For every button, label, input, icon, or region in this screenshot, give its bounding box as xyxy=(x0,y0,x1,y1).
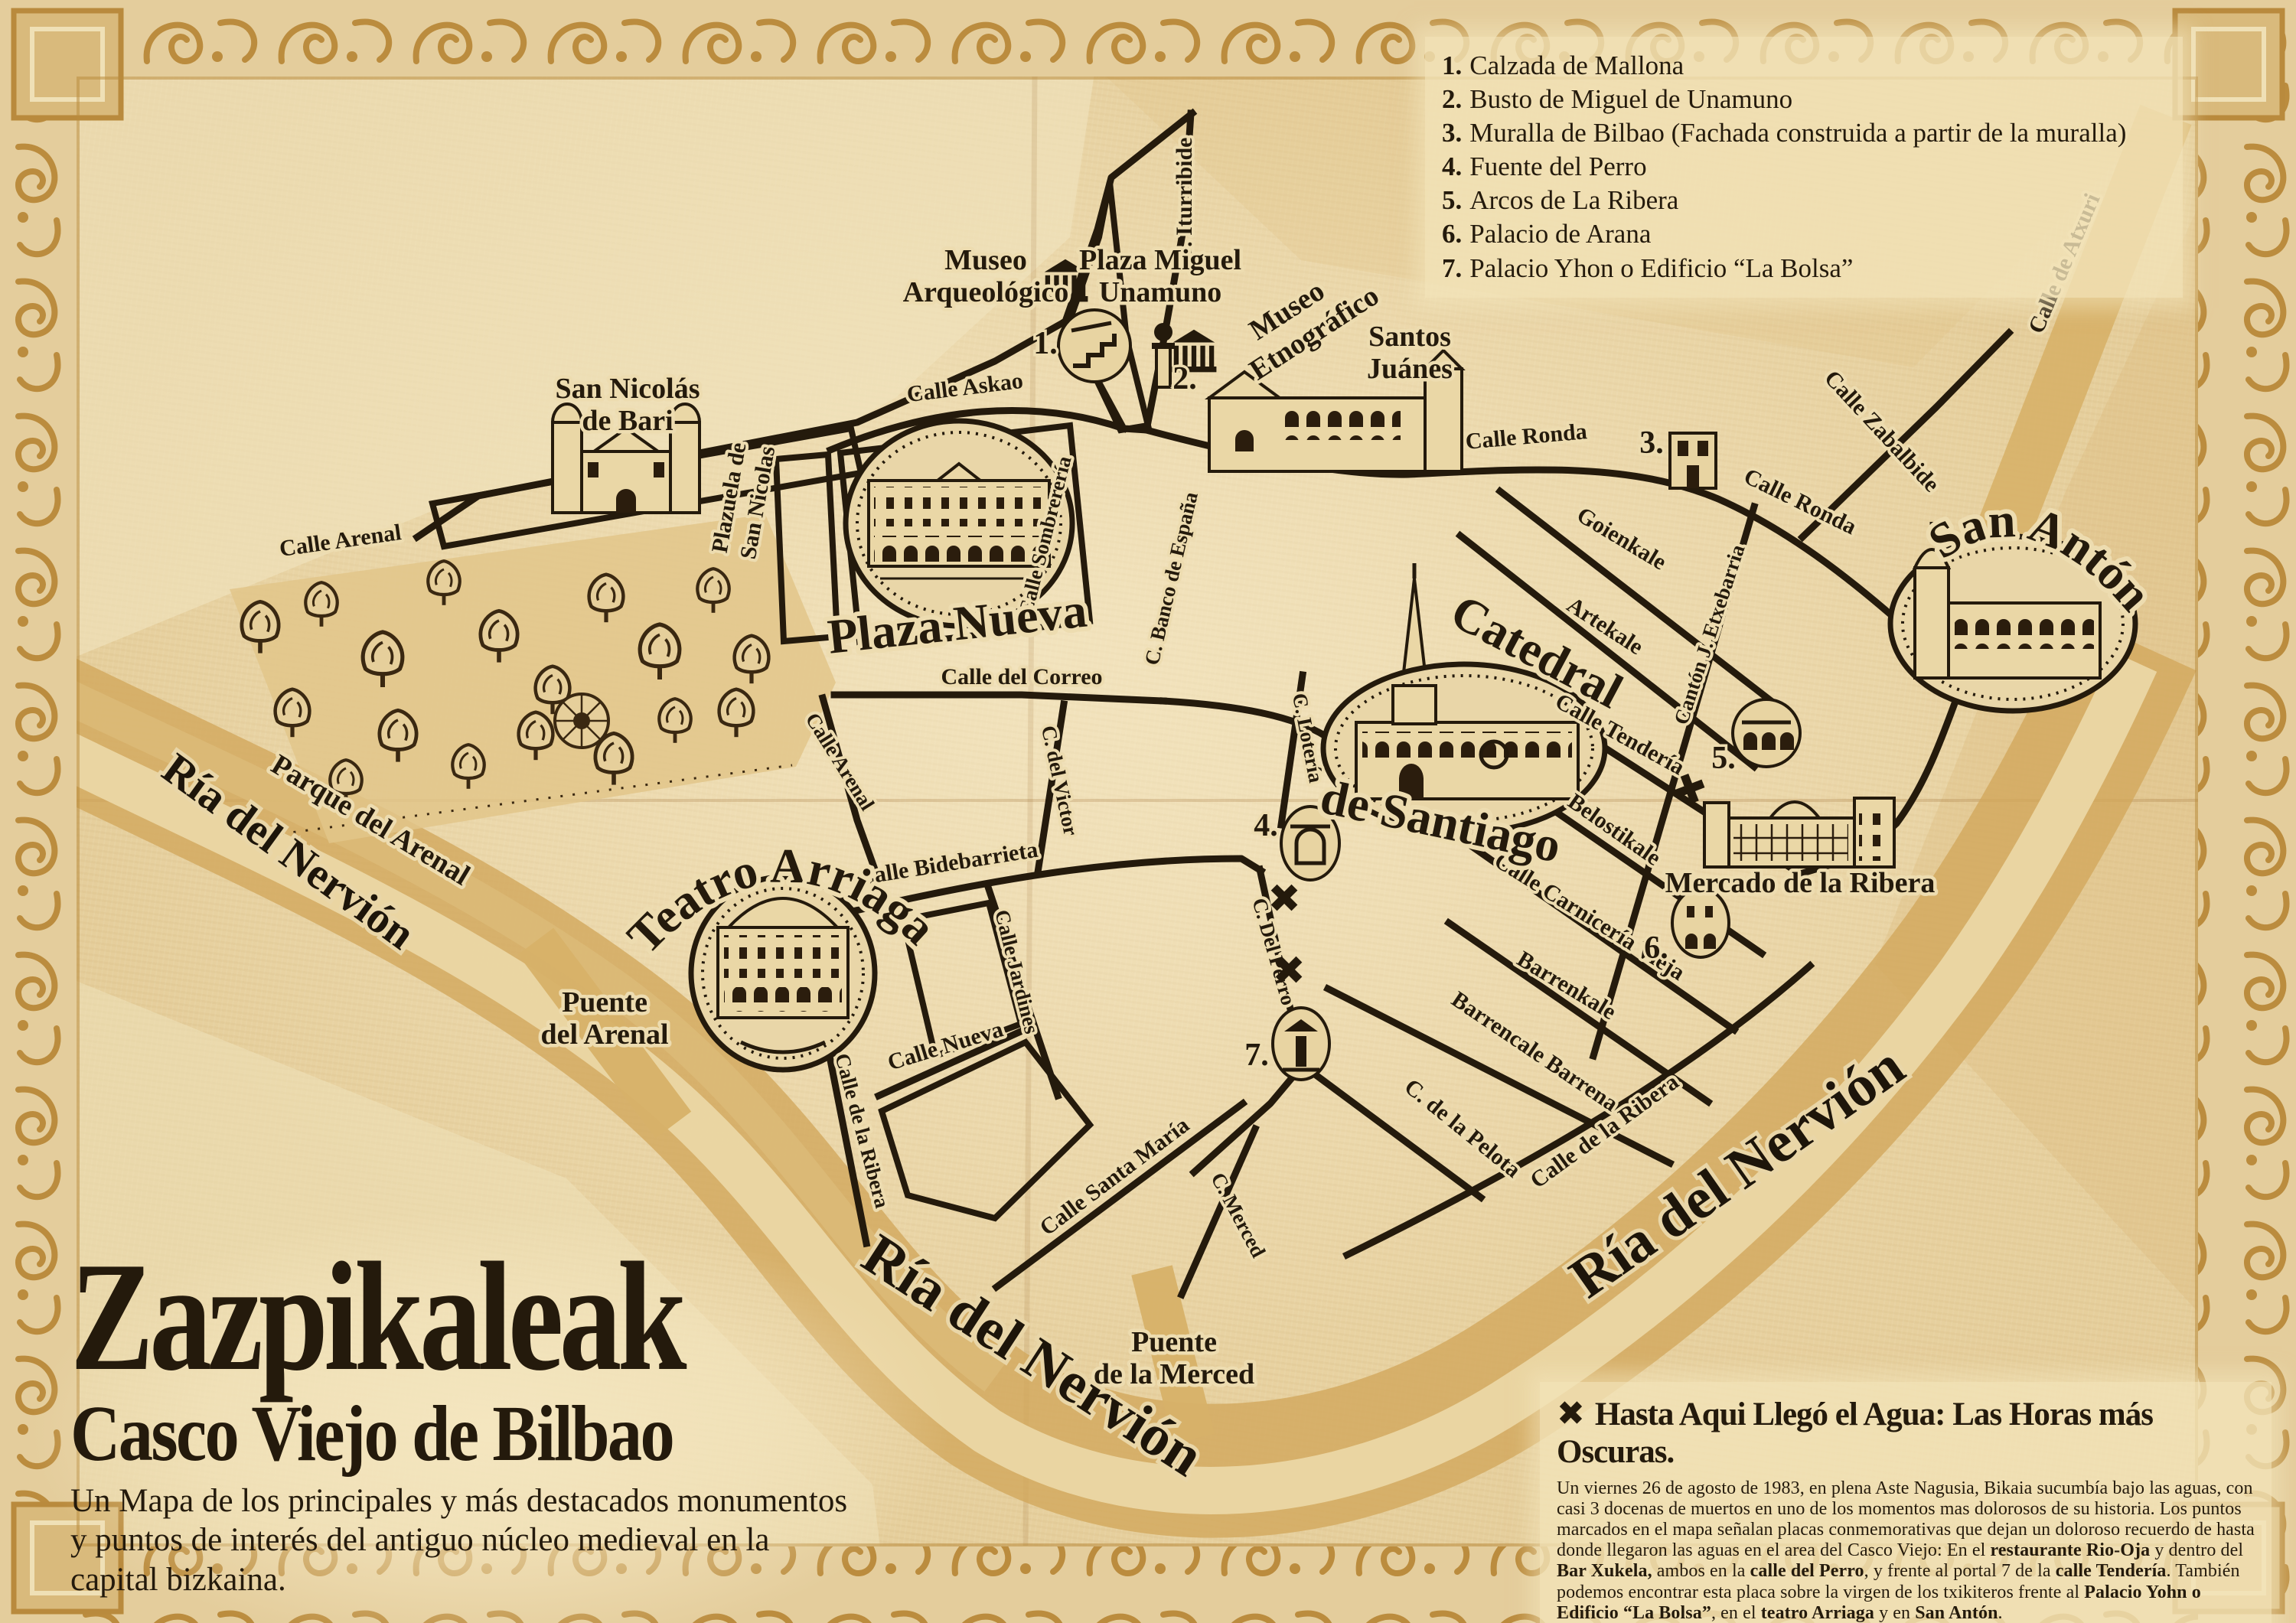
legend-item-label: Fuente del Perro xyxy=(1469,152,1646,181)
water-level-x-icon: ✖ xyxy=(1272,948,1306,994)
palacio-yhon-icon xyxy=(1273,1008,1329,1080)
marker-7: 7. xyxy=(1244,1038,1269,1073)
legend-item-number: 7. xyxy=(1442,253,1462,283)
calzada-de-mallona-icon xyxy=(1058,310,1130,382)
arcos-de-la-ribera-icon xyxy=(1733,699,1800,767)
flood-info-body: Un viernes 26 de agosto de 1983, en plen… xyxy=(1557,1478,2255,1623)
street-label-calle-arenal-2: Calle Arenal xyxy=(801,709,879,815)
legend-item-label: Arcos de La Ribera xyxy=(1469,185,1678,215)
info-segment-bold: calle Tendería xyxy=(2056,1561,2167,1581)
marker-2: 2. xyxy=(1172,361,1197,396)
marker-4: 4. xyxy=(1254,808,1278,843)
legend-item-label: Palacio Yhon o Edificio “La Bolsa” xyxy=(1469,253,1853,283)
info-segment: . xyxy=(1998,1603,2003,1623)
info-segment: , y frente al portal 7 de la xyxy=(1864,1561,2056,1581)
street-label-ronda-1: Calle Ronda xyxy=(1464,419,1587,455)
page-subtitle: Casco Viejo de Bilbao xyxy=(70,1394,790,1474)
place-label-plaza-unamuno: Plaza MiguelUnamuno xyxy=(1079,244,1241,308)
marker-5: 5. xyxy=(1711,741,1736,776)
legend-item-number: 6. xyxy=(1442,219,1462,249)
water-level-x-icon: ✖ xyxy=(1267,876,1301,922)
marker-1: 1. xyxy=(1033,326,1058,361)
x-marker-icon: ✖ xyxy=(1557,1394,1584,1433)
legend-item-label: Busto de Miguel de Unamuno xyxy=(1469,84,1792,114)
flood-info-heading-text: Hasta Aqui Llegó el Agua: Las Horas más … xyxy=(1557,1396,2153,1470)
page-title: Zazpikaleak xyxy=(70,1246,732,1390)
legend-item: 6.Palacio de Arana xyxy=(1442,217,2166,251)
info-segment-bold: restaurante Rio-Oja xyxy=(1990,1540,2150,1560)
legend-item: 5.Arcos de La Ribera xyxy=(1442,184,2166,217)
info-segment-bold: San Antón xyxy=(1915,1603,1998,1623)
marker-6: 6. xyxy=(1644,930,1668,966)
place-label-santos-juanes: SantosJuánes xyxy=(1367,321,1453,385)
place-label-museo-etnografico: MuseoEtnográfico xyxy=(1225,251,1384,386)
info-segment-bold: Bar Xukela, xyxy=(1557,1561,1652,1581)
info-segment: ambos en la xyxy=(1652,1561,1750,1581)
legend-item: 2.Busto de Miguel de Unamuno xyxy=(1442,83,2166,116)
street-label-barrenkale: Barrenkale xyxy=(1512,947,1620,1025)
street-label-santa-maria: Calle Santa María xyxy=(1035,1113,1195,1241)
flood-info-box: ✖Hasta Aqui Llegó el Agua: Las Horas más… xyxy=(1540,1382,2272,1623)
title-block: Zazpikaleak Casco Viejo de Bilbao Un Map… xyxy=(70,1246,897,1599)
info-segment-bold: calle del Perro xyxy=(1750,1561,1864,1581)
info-segment-bold: teatro Arriaga xyxy=(1761,1603,1874,1623)
street-label-goienkale: Goienkale xyxy=(1573,502,1671,575)
legend-item-label: Calzada de Mallona xyxy=(1469,51,1684,80)
page-description: Un Mapa de los principales y más destaca… xyxy=(70,1481,851,1600)
bandstand-icon xyxy=(555,694,608,748)
info-segment: , en el xyxy=(1711,1603,1761,1623)
legend-item-number: 5. xyxy=(1442,185,1462,215)
mercado-de-la-ribera-icon xyxy=(1704,798,1894,867)
muralla-de-bilbao-icon xyxy=(1670,433,1716,488)
legend-item: 1.Calzada de Mallona xyxy=(1442,49,2166,83)
street-label-correo: Calle del Correo xyxy=(941,664,1102,689)
info-segment: y dentro del xyxy=(2150,1540,2243,1560)
legend-panel: 1.Calzada de Mallona 2.Busto de Miguel d… xyxy=(1425,37,2183,298)
place-label-mercado: Mercado de la Ribera xyxy=(1665,867,1936,899)
street-label-banco-espana: C. Banco de España xyxy=(1140,490,1202,667)
marker-3: 3. xyxy=(1639,425,1664,461)
unamuno-bust-icon xyxy=(1152,323,1175,387)
legend-item: 4.Fuente del Perro xyxy=(1442,150,2166,184)
map-poster: Calle Arenal Calle Askao C. Iturribide C… xyxy=(0,0,2296,1623)
legend-item: 3.Muralla de Bilbao (Fachada construida … xyxy=(1442,116,2166,150)
flood-info-heading: ✖Hasta Aqui Llegó el Agua: Las Horas más… xyxy=(1557,1394,2255,1471)
street-label-pelota: C. de la Pelota xyxy=(1400,1074,1526,1183)
legend-item-label: Palacio de Arana xyxy=(1469,219,1651,249)
street-label-zabalbide: Calle Zabalbide xyxy=(1819,366,1944,497)
legend-item-number: 1. xyxy=(1442,51,1462,80)
legend-item-number: 3. xyxy=(1442,118,1462,148)
legend-item-number: 4. xyxy=(1442,152,1462,181)
legend-item-number: 2. xyxy=(1442,84,1462,114)
info-segment: y en xyxy=(1874,1603,1915,1623)
legend-item-label: Muralla de Bilbao (Fachada construida a … xyxy=(1469,118,2126,148)
legend-item: 7.Palacio Yhon o Edificio “La Bolsa” xyxy=(1442,252,2166,285)
